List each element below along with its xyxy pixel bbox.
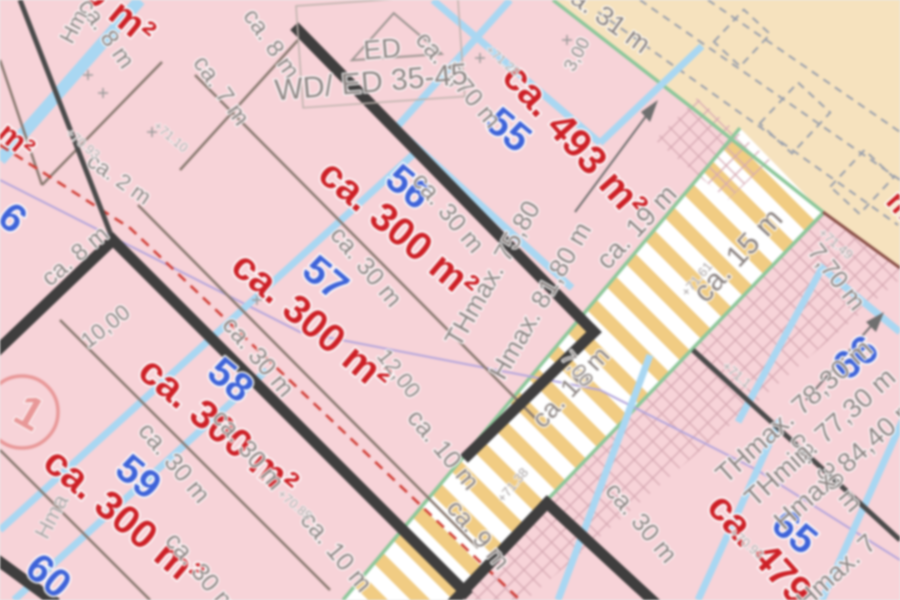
zoning-map: 55565758596065666ca. 493 m²ca. 300 m²ca.…	[0, 0, 900, 600]
dimension-label: ED	[362, 32, 402, 65]
map-viewport[interactable]: 55565758596065666ca. 493 m²ca. 300 m²ca.…	[0, 0, 900, 600]
